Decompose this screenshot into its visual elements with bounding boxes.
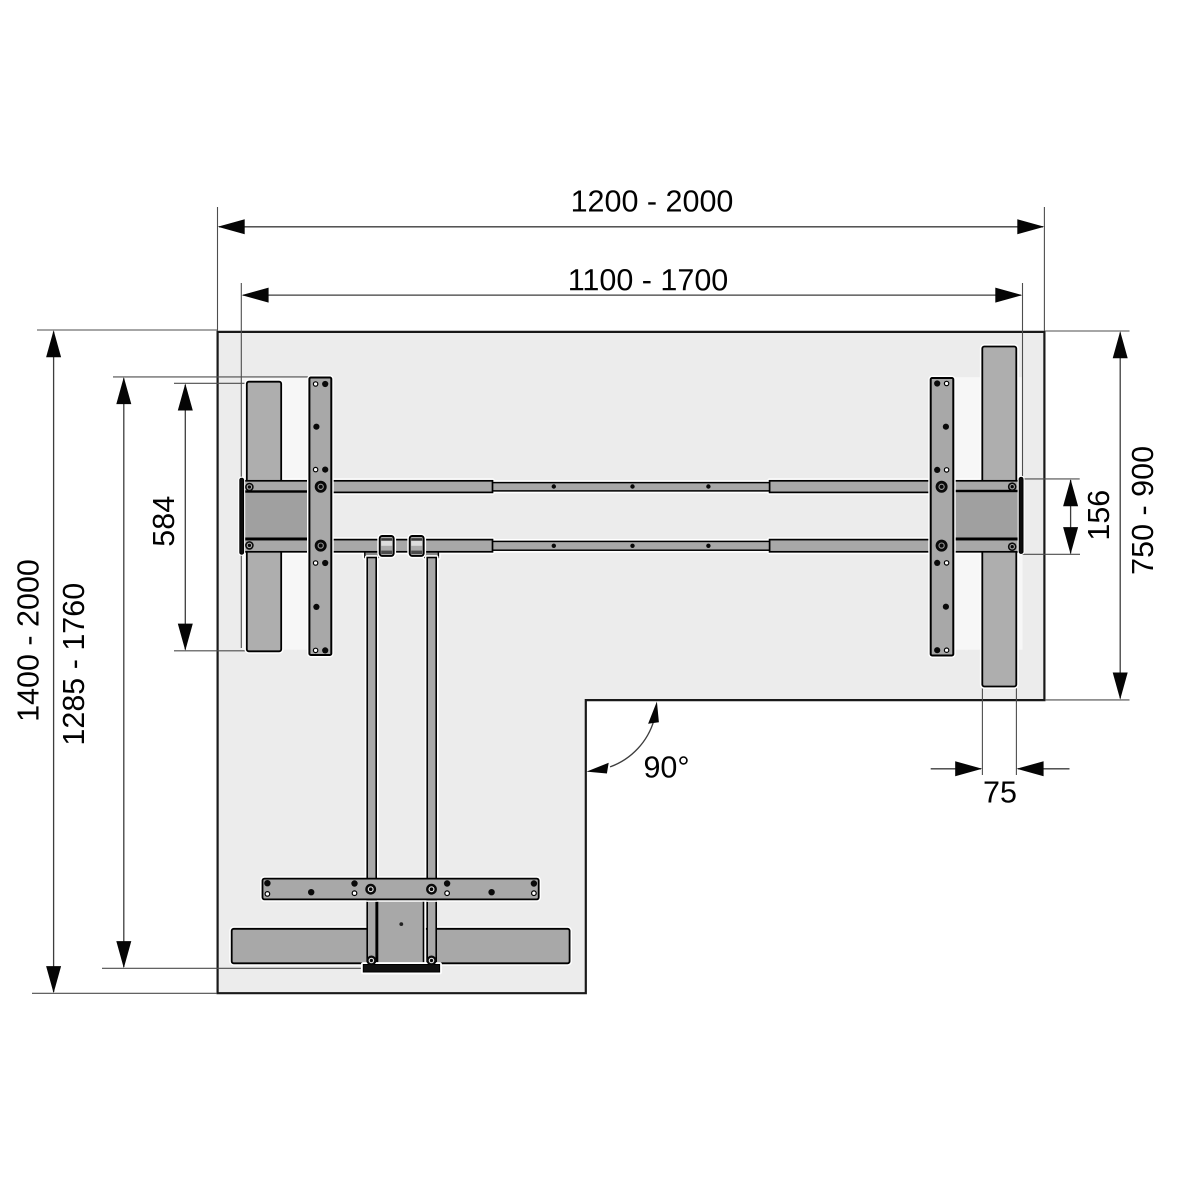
svg-text:1285 - 1760: 1285 - 1760 xyxy=(57,583,91,746)
svg-text:156: 156 xyxy=(1082,490,1116,541)
svg-text:1400 - 2000: 1400 - 2000 xyxy=(12,559,46,722)
svg-text:90°: 90° xyxy=(643,750,689,784)
svg-text:750 - 900: 750 - 900 xyxy=(1126,446,1160,575)
svg-text:584: 584 xyxy=(147,496,181,547)
svg-text:1200 - 2000: 1200 - 2000 xyxy=(571,184,734,218)
svg-text:1100 - 1700: 1100 - 1700 xyxy=(568,263,729,297)
svg-text:75: 75 xyxy=(983,775,1017,809)
